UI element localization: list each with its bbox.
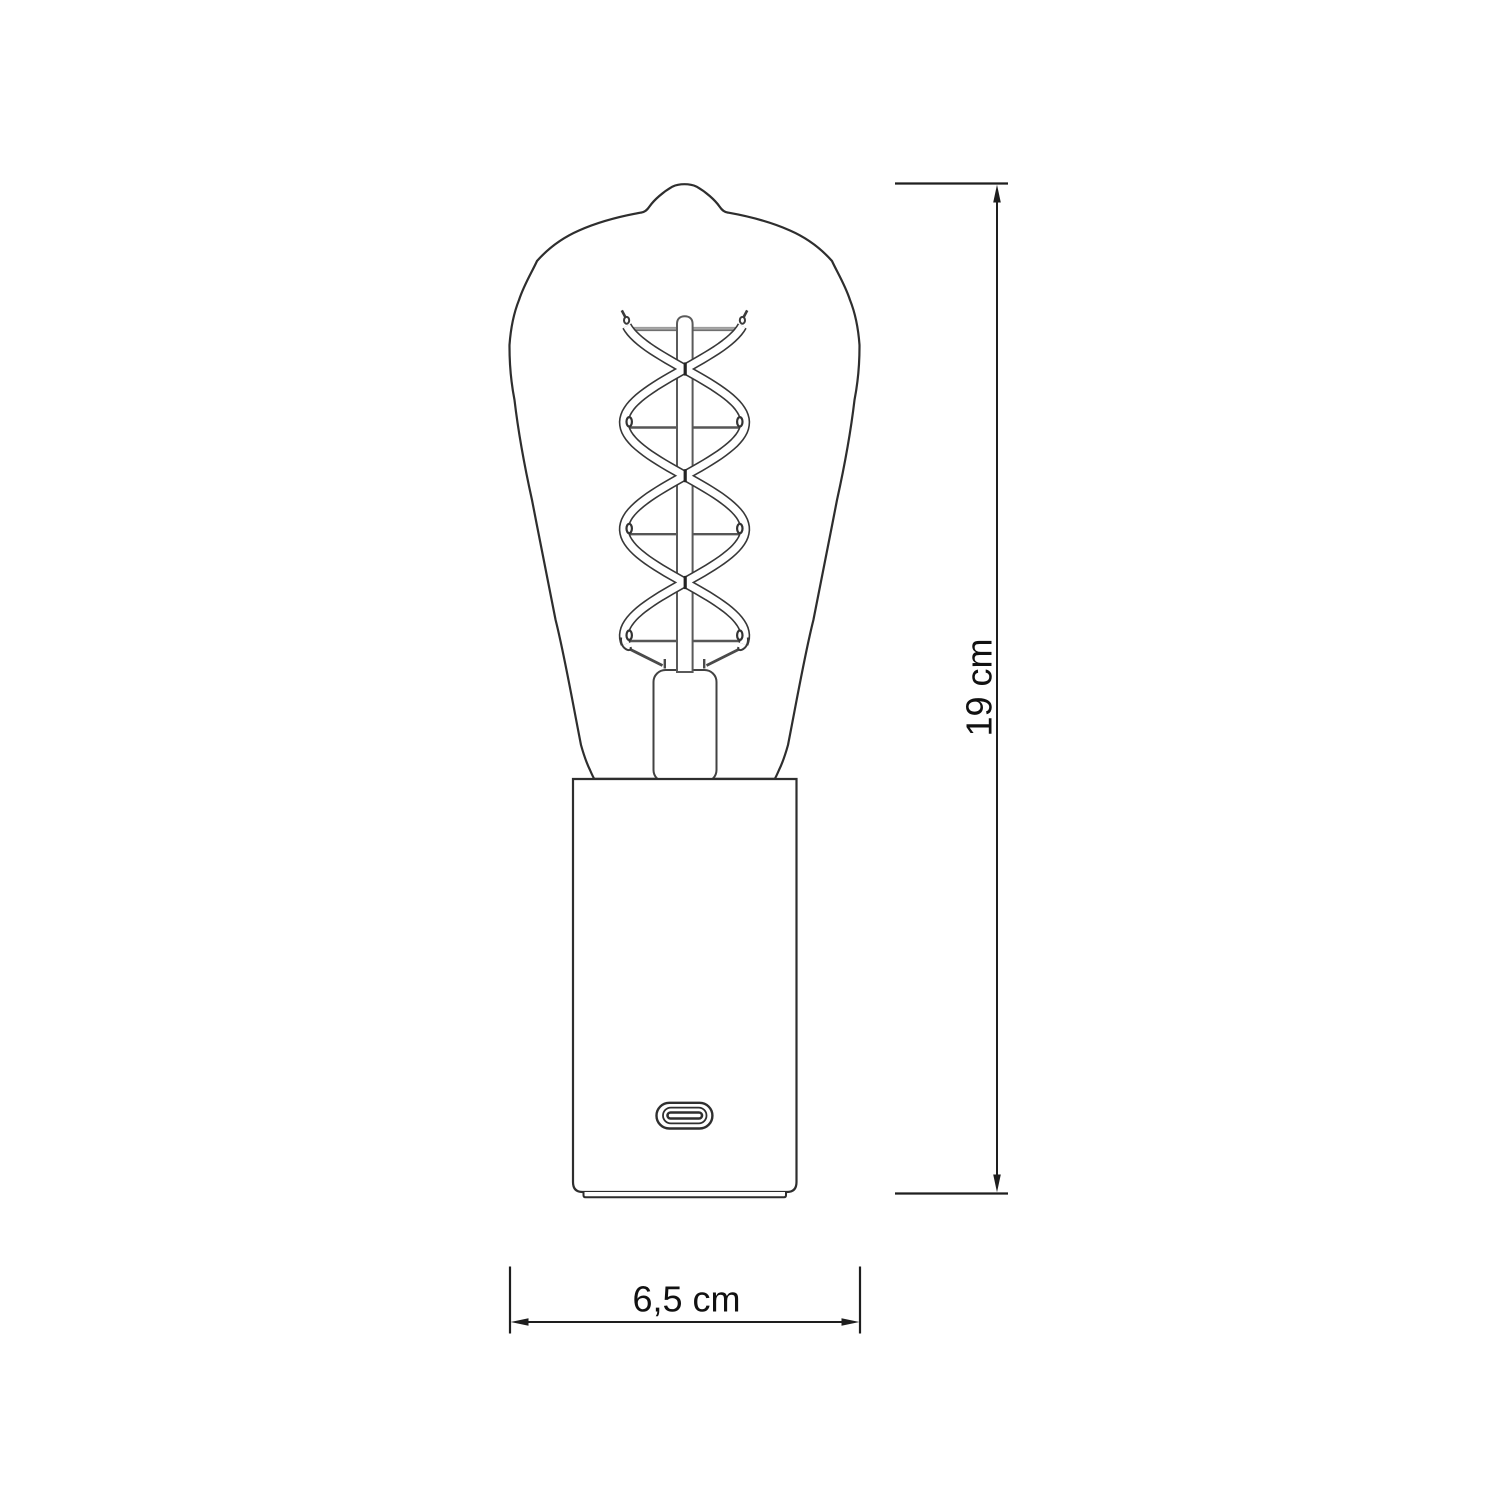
svg-text:6,5 cm: 6,5 cm (632, 1279, 740, 1320)
svg-text:19 cm: 19 cm (959, 638, 1000, 736)
